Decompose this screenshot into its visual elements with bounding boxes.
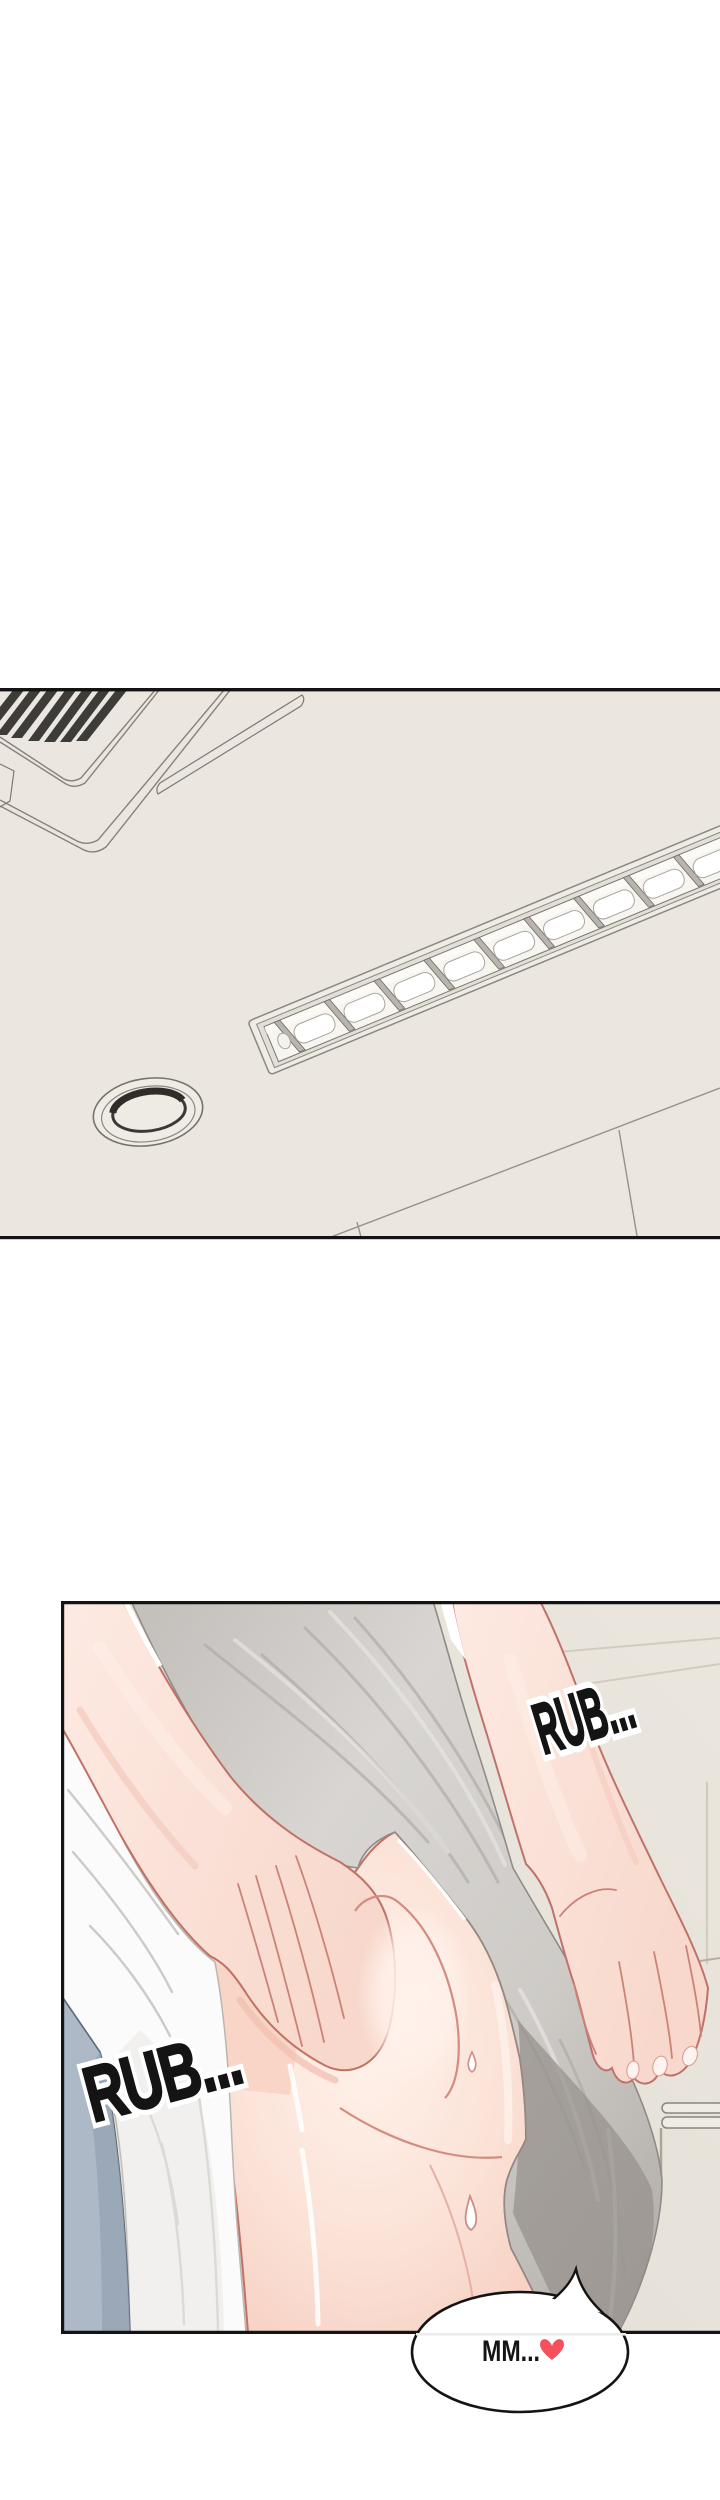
- svg-text:MM...: MM...: [482, 2335, 540, 2368]
